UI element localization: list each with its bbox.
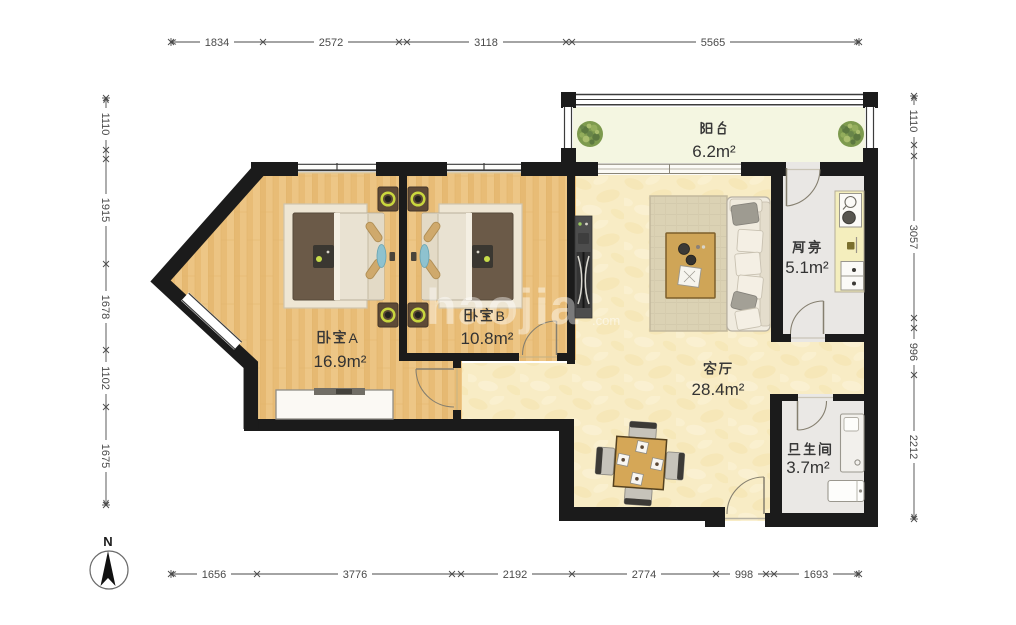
svg-text:996: 996	[907, 343, 919, 361]
svg-text:2192: 2192	[503, 569, 527, 581]
svg-text:3057: 3057	[907, 225, 919, 249]
svg-text:16.9m²: 16.9m²	[314, 352, 367, 371]
svg-text:5.1m²: 5.1m²	[785, 258, 829, 277]
svg-text:1675: 1675	[99, 444, 111, 468]
svg-text:N: N	[103, 534, 112, 549]
svg-text:2212: 2212	[907, 435, 919, 459]
svg-text:5565: 5565	[701, 37, 725, 49]
svg-text:1110: 1110	[907, 110, 919, 133]
svg-text:3776: 3776	[343, 569, 367, 581]
svg-text:2572: 2572	[319, 37, 343, 49]
svg-text:1110: 1110	[99, 113, 111, 136]
svg-text:1678: 1678	[99, 295, 111, 319]
svg-text:28.4m²: 28.4m²	[692, 380, 745, 399]
svg-text:1834: 1834	[205, 37, 229, 49]
svg-text:1693: 1693	[804, 569, 828, 581]
svg-text:haojia: haojia	[426, 279, 579, 335]
svg-text:3118: 3118	[474, 37, 498, 49]
svg-text:998: 998	[735, 569, 753, 581]
svg-text:10.8m²: 10.8m²	[461, 329, 514, 348]
svg-text:B: B	[496, 308, 505, 324]
svg-text:A: A	[349, 330, 359, 346]
svg-text:1656: 1656	[202, 569, 226, 581]
svg-text:1102: 1102	[99, 366, 111, 390]
svg-text:2774: 2774	[632, 569, 656, 581]
svg-text:3.7m²: 3.7m²	[786, 458, 830, 477]
svg-text:1915: 1915	[99, 198, 111, 222]
svg-text:6.2m²: 6.2m²	[692, 142, 736, 161]
svg-text:.com: .com	[592, 313, 620, 328]
